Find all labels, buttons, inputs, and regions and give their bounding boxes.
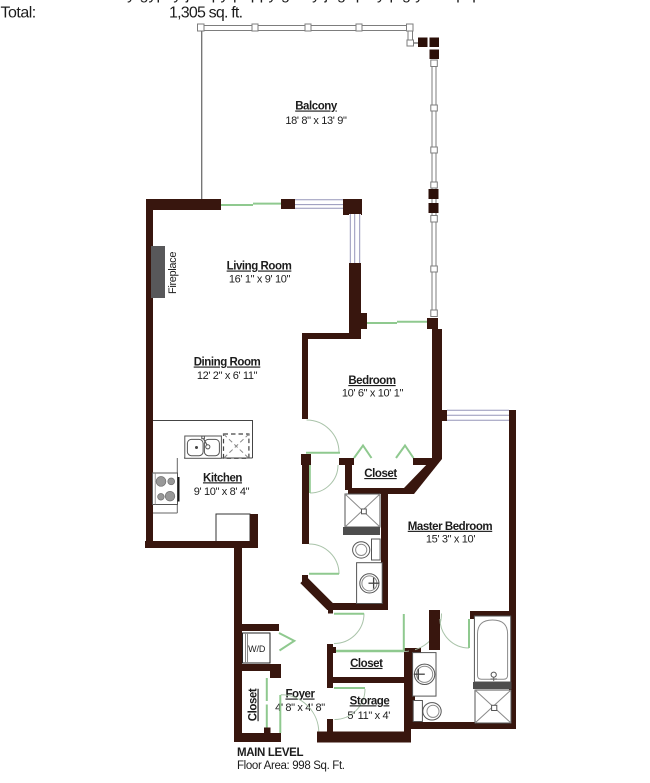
svg-text:16' 1" x 9' 10": 16' 1" x 9' 10" bbox=[229, 274, 291, 286]
svg-text:Closet: Closet bbox=[248, 688, 260, 721]
svg-text:Dining Room: Dining Room bbox=[194, 357, 261, 369]
svg-text:9' 10" x 8' 4": 9' 10" x 8' 4" bbox=[194, 486, 250, 498]
svg-text:Closet: Closet bbox=[364, 468, 397, 480]
svg-text:Floor Area: 998 Sq. Ft.: Floor Area: 998 Sq. Ft. bbox=[237, 760, 345, 772]
svg-text:Many gypsy jumpy puppy gravy j: Many gypsy jumpy puppy gravy jog quay pi… bbox=[96, 0, 481, 3]
svg-text:12' 2" x 6' 11": 12' 2" x 6' 11" bbox=[197, 370, 258, 382]
svg-text:Fireplace: Fireplace bbox=[167, 252, 179, 294]
svg-text:15' 3" x 10': 15' 3" x 10' bbox=[426, 534, 475, 546]
svg-text:Closet: Closet bbox=[350, 658, 383, 670]
svg-text:1,305 sq. ft.: 1,305 sq. ft. bbox=[169, 5, 242, 22]
svg-text:5' 11" x 4': 5' 11" x 4' bbox=[347, 710, 390, 722]
svg-text:Bedroom: Bedroom bbox=[348, 375, 396, 387]
svg-text:10' 6" x 10' 1": 10' 6" x 10' 1" bbox=[342, 388, 404, 400]
svg-text:W/D: W/D bbox=[248, 644, 266, 654]
svg-text:MAIN LEVEL: MAIN LEVEL bbox=[237, 747, 303, 759]
svg-text:Master Bedroom: Master Bedroom bbox=[408, 521, 493, 533]
svg-text:18' 8" x 13' 9": 18' 8" x 13' 9" bbox=[285, 115, 347, 127]
svg-text:Storage: Storage bbox=[350, 695, 390, 707]
svg-text:4' 8" x 4' 8": 4' 8" x 4' 8" bbox=[275, 702, 325, 714]
svg-text:Foyer: Foyer bbox=[285, 689, 315, 701]
svg-text:Balcony: Balcony bbox=[295, 101, 338, 113]
svg-text:Living Room: Living Room bbox=[227, 261, 292, 273]
svg-text:Total:: Total: bbox=[1, 5, 36, 22]
svg-text:Kitchen: Kitchen bbox=[203, 472, 242, 484]
